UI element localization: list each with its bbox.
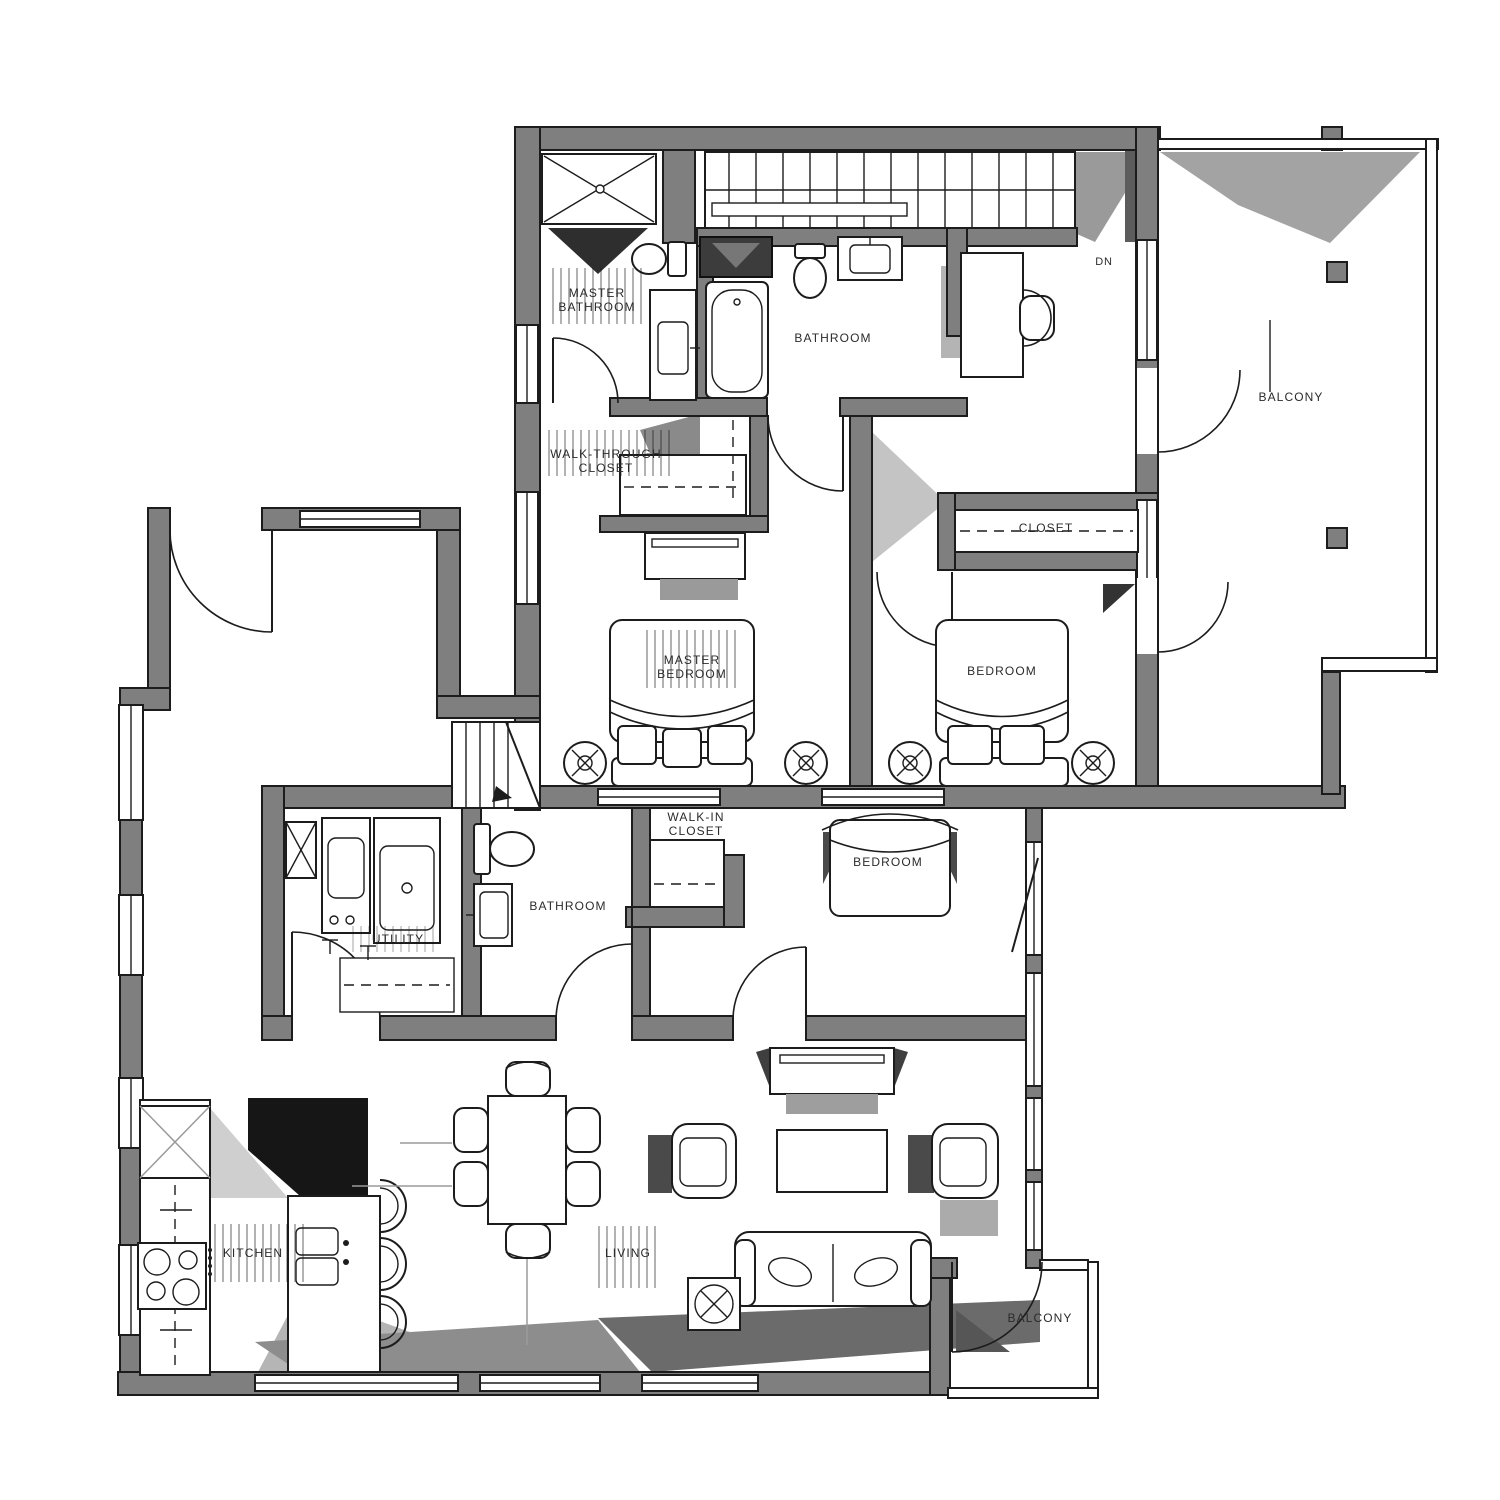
dining-chair	[454, 1162, 488, 1206]
label-upper-bedroom: BEDROOM	[967, 664, 1037, 678]
plant-table	[688, 1278, 740, 1330]
lower-stairs	[452, 722, 540, 808]
label-walk-in-closet: WALK-INCLOSET	[667, 810, 724, 838]
label-upper-closet: CLOSET	[1019, 521, 1074, 535]
landing-desk	[961, 253, 1054, 377]
armchair-side	[648, 1135, 672, 1193]
master-bath-vanity	[650, 290, 700, 400]
bathroom-vanity	[838, 237, 902, 280]
walk-in-closet-unit	[650, 840, 724, 907]
label-master-bathroom: MASTERBATHROOM	[558, 286, 635, 314]
dining-chair	[566, 1162, 600, 1206]
bedroom-bed	[889, 620, 1114, 786]
upper-stairs	[705, 152, 1075, 228]
dining-chair	[506, 1224, 550, 1258]
sofa	[735, 1232, 931, 1306]
lower-bathroom-fixtures	[466, 824, 534, 946]
bath-niche	[700, 237, 772, 277]
label-master-bedroom: MASTERBEDROOM	[657, 653, 727, 681]
master-dresser	[645, 533, 745, 600]
dining-chair	[506, 1062, 550, 1096]
armchair-side	[908, 1135, 934, 1193]
label-utility: UTILITY	[372, 932, 424, 946]
bathtub	[706, 282, 768, 398]
balcony-column	[1327, 528, 1347, 548]
dining-set	[352, 1062, 600, 1345]
label-walk-through-closet: WALK-THROUGHCLOSET	[550, 447, 661, 475]
label-upper-balcony: BALCONY	[1258, 390, 1323, 404]
label-dn: DN	[1095, 255, 1113, 269]
coffee-table	[777, 1130, 887, 1192]
dining-chair	[454, 1108, 488, 1152]
label-lower-bedroom: BEDROOM	[853, 855, 923, 869]
label-kitchen: KITCHEN	[223, 1246, 283, 1260]
tv-console	[756, 1048, 908, 1114]
bathroom-toilet	[794, 244, 826, 298]
shower	[542, 154, 656, 224]
label-upper-bathroom: BATHROOM	[794, 331, 871, 345]
label-lower-bathroom: BATHROOM	[529, 899, 606, 913]
label-lower-balcony: BALCONY	[1007, 1311, 1072, 1325]
utility-fixtures	[286, 818, 454, 1012]
stove	[138, 1243, 212, 1309]
balcony-column	[1327, 262, 1347, 282]
label-living: LIVING	[605, 1246, 651, 1260]
floor-plan: MASTERBATHROOM BATHROOM WALK-THROUGHCLOS…	[0, 0, 1500, 1500]
dining-chair	[566, 1108, 600, 1152]
